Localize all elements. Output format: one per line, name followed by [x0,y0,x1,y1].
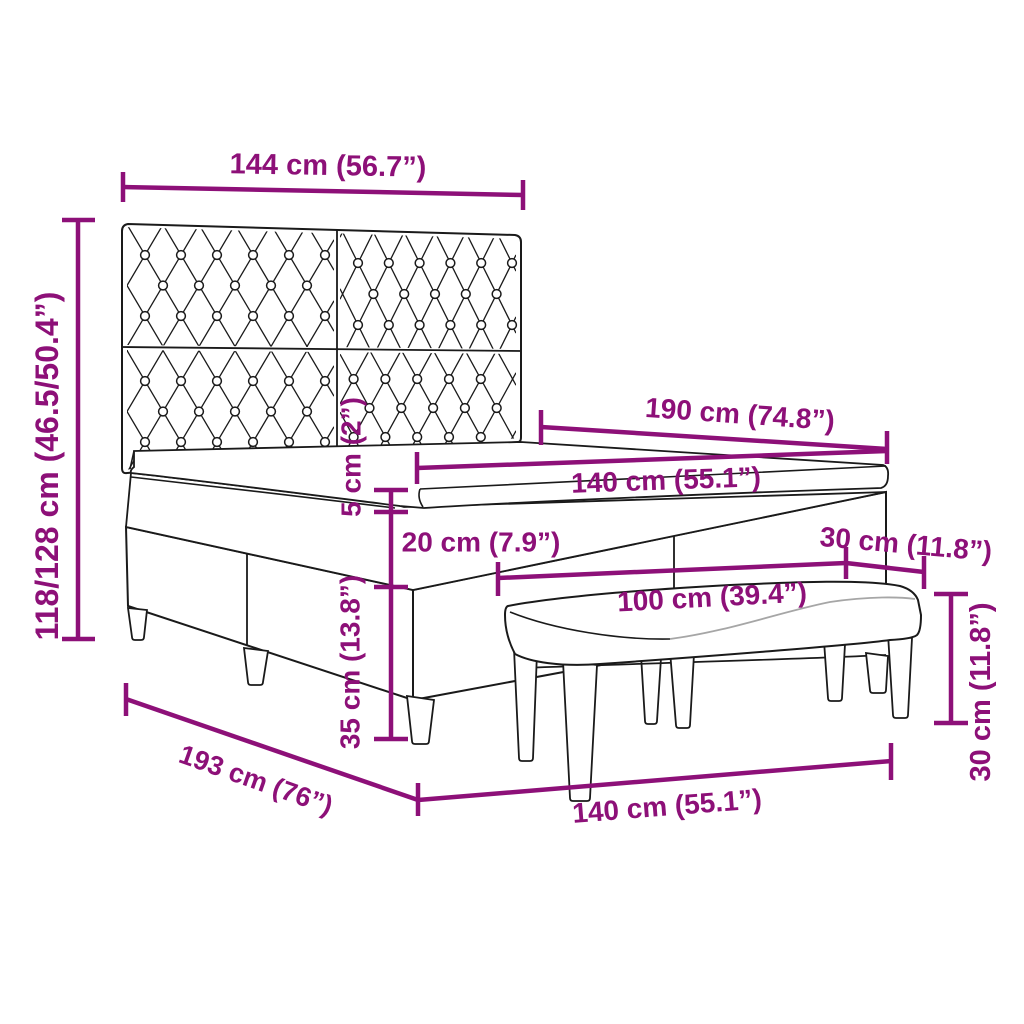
svg-text:5 cm (2”): 5 cm (2”) [336,397,367,517]
svg-text:140 cm (55.1”): 140 cm (55.1”) [571,461,762,499]
svg-text:144 cm (56.7”): 144 cm (56.7”) [229,148,426,183]
svg-text:118/128 cm (46.5/50.4”): 118/128 cm (46.5/50.4”) [29,292,65,641]
svg-text:30 cm (11.8”): 30 cm (11.8”) [965,603,997,782]
svg-text:35 cm (13.8”): 35 cm (13.8”) [335,575,366,749]
svg-text:20 cm (7.9”): 20 cm (7.9”) [402,527,561,558]
